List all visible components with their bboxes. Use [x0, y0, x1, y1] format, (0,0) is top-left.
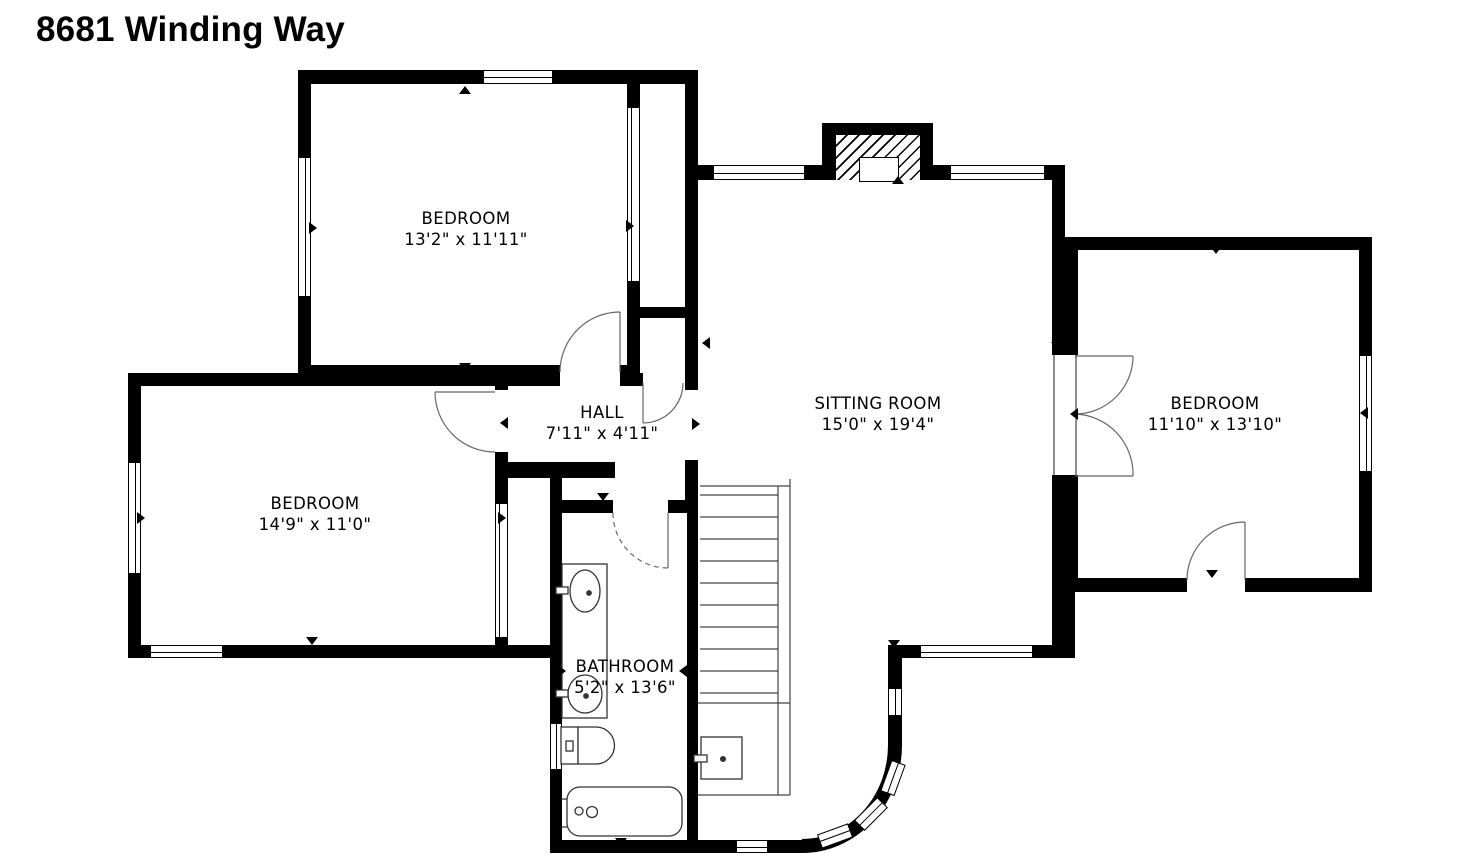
fireplace-icon	[859, 157, 899, 182]
sliding-door	[627, 107, 640, 282]
window	[483, 70, 553, 84]
window	[298, 157, 311, 297]
door-opening	[560, 365, 620, 386]
door-swing	[1187, 522, 1245, 580]
window	[550, 723, 562, 770]
room-label-bathroom: BATHROOM 5'2" x 13'6"	[574, 656, 676, 698]
room-dims: 5'2" x 13'6"	[574, 677, 676, 698]
door-opening	[613, 500, 668, 513]
window	[888, 688, 902, 716]
window	[128, 462, 141, 574]
wall	[627, 307, 698, 318]
room-name: HALL	[546, 402, 659, 423]
wall	[685, 460, 698, 505]
wall	[687, 500, 698, 853]
window	[920, 645, 1033, 658]
room-label-sitting-room: SITTING ROOM 15'0" x 19'4"	[815, 393, 942, 435]
double-door-swing	[1075, 414, 1133, 476]
window	[950, 165, 1045, 180]
window	[150, 645, 223, 658]
room-label-hall: HALL 7'11" x 4'11"	[546, 402, 659, 444]
room-label-bedroom-top: BEDROOM 13'2" x 11'11"	[404, 208, 528, 250]
window	[881, 761, 905, 796]
room-name: BEDROOM	[404, 208, 528, 229]
room-name: SITTING ROOM	[815, 393, 942, 414]
window	[713, 165, 805, 180]
room-dims: 11'10" x 13'10"	[1148, 414, 1283, 435]
door-opening	[495, 390, 508, 452]
under-stair-sink	[694, 737, 742, 779]
wall	[128, 373, 508, 386]
room-name: BEDROOM	[1148, 393, 1283, 414]
bathtub	[561, 787, 682, 836]
room-dims: 15'0" x 19'4"	[815, 414, 942, 435]
room-dims: 7'11" x 4'11"	[546, 423, 659, 444]
room-label-bedroom-left: BEDROOM 14'9" x 11'0"	[259, 493, 372, 535]
window	[855, 798, 888, 831]
room-dims: 14'9" x 11'0"	[259, 514, 372, 535]
door-swing	[613, 513, 668, 568]
staircase	[698, 479, 790, 795]
curved-bay-wall	[802, 745, 895, 846]
room-dims: 13'2" x 11'11"	[404, 229, 528, 250]
toilet	[561, 727, 615, 764]
wall	[550, 472, 562, 853]
door-opening	[1187, 578, 1245, 592]
door-opening	[1052, 355, 1078, 475]
window	[736, 840, 768, 853]
door-swing	[560, 312, 620, 372]
window	[818, 824, 853, 848]
room-label-bedroom-right: BEDROOM 11'10" x 13'10"	[1148, 393, 1283, 435]
double-door-swing	[1075, 356, 1133, 414]
wall	[1065, 237, 1372, 250]
wall	[685, 70, 698, 390]
sliding-door	[495, 503, 508, 638]
page-title: 8681 Winding Way	[36, 10, 345, 50]
marker-icons	[137, 86, 1368, 846]
room-name: BEDROOM	[259, 493, 372, 514]
room-name: BATHROOM	[574, 656, 676, 677]
window	[1359, 355, 1372, 472]
door-swing	[435, 392, 495, 452]
floor-plan: 8681 Winding Way	[0, 0, 1472, 865]
